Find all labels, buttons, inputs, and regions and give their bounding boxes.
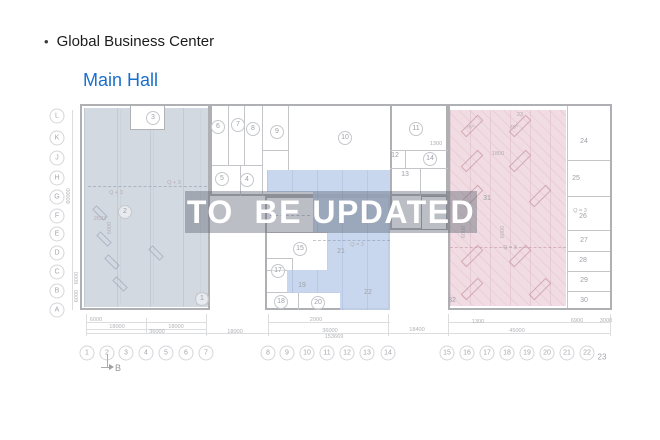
dimension-tick [206, 314, 207, 336]
wall [228, 106, 229, 165]
dimension-tick [448, 314, 449, 336]
dimension-text-vertical: 6000 [73, 290, 79, 302]
hall-tab-main-hall[interactable]: Main Hall [83, 70, 158, 91]
plan-annotation: 1800 [492, 150, 504, 156]
room-number: 25 [570, 173, 582, 185]
section-arrow-icon [109, 364, 114, 370]
dimension-tick [86, 314, 87, 336]
room-number: 15 [293, 242, 307, 256]
page: •Global Business Center Main Hall [0, 0, 660, 440]
section-marker-label: B [115, 363, 121, 373]
wall [567, 291, 610, 292]
grid-col-label: 8 [261, 346, 276, 361]
room-number: 31 [481, 193, 493, 205]
grid-row-label: E [50, 227, 65, 242]
room-number: 24 [578, 136, 590, 148]
plan-annotation: Q = 3 [503, 244, 517, 250]
wall [288, 106, 289, 170]
dimension-text-vertical: 60000 [65, 188, 71, 204]
grid-col-label: 14 [381, 346, 396, 361]
grid-row-label: J [50, 151, 65, 166]
room-number: 1 [195, 292, 209, 306]
plan-annotation: 23 [517, 111, 523, 117]
room-number: 10 [338, 131, 352, 145]
room-number: 28 [577, 255, 589, 267]
dimension-text: 3000 [600, 317, 612, 323]
grid-col-label: 1 [80, 346, 95, 361]
dimension-text: 45000 [509, 327, 525, 333]
grid-col-label: 19 [520, 346, 535, 361]
dimension-text: 36000 [149, 328, 165, 334]
grid-col-label: 17 [480, 346, 495, 361]
room-number: 2 [118, 205, 132, 219]
grid-col-label: 13 [360, 346, 375, 361]
dimension-text: 1300 [472, 318, 484, 324]
room-number: 12 [389, 150, 401, 162]
room-number: 30 [578, 295, 590, 307]
grid-row-label: K [50, 131, 65, 146]
dimension-text-vertical: 6000 [73, 272, 79, 284]
dimension-text: 18000 [168, 323, 184, 329]
grid-col-label: 9 [280, 346, 295, 361]
wall [212, 165, 262, 166]
dimension-text-vertical: 6000 [106, 222, 112, 234]
grid-col-label: 5 [159, 346, 174, 361]
wall [298, 292, 299, 310]
watermark-band: TO BE UPDATED [185, 191, 477, 233]
plan-annotation: 1300 [430, 140, 442, 146]
grid-col-label: 4 [139, 346, 154, 361]
wall [567, 271, 610, 272]
dashed-line [88, 186, 207, 187]
room-number: 14 [423, 152, 437, 166]
grid-col-label: 10 [300, 346, 315, 361]
grid-col-label: 16 [460, 346, 475, 361]
dimension-text: 18000 [227, 328, 243, 334]
dimension-line [268, 322, 390, 323]
grid-col-label: 7 [199, 346, 214, 361]
room-number: 8 [246, 122, 260, 136]
room-number: 7 [231, 118, 245, 132]
page-title-row: •Global Business Center [44, 33, 214, 50]
wall [405, 150, 406, 168]
grid-col-label: 11 [320, 346, 335, 361]
plan-annotation: Q + 3 [167, 179, 181, 185]
room-number: 32 [446, 295, 458, 307]
room-number: 17 [271, 264, 285, 278]
room-number: 20 [311, 296, 325, 310]
room-number: 22 [362, 287, 374, 299]
grid-row-label: D [50, 246, 65, 261]
grid-col-label: 22 [580, 346, 595, 361]
grid-row-label: F [50, 209, 65, 224]
section-marker-line [107, 354, 108, 367]
dimension-text: 153669 [325, 333, 344, 339]
dimension-tick [388, 314, 389, 336]
page-title: Global Business Center [57, 33, 215, 50]
wall [262, 150, 288, 151]
watermark-text: TO BE UPDATED [187, 194, 475, 231]
bullet-icon: • [44, 34, 49, 49]
room-number: 18 [274, 295, 288, 309]
grid-col-label: 20 [540, 346, 555, 361]
plan-annotation: Q = 3 [350, 241, 364, 247]
room-number: 4 [240, 173, 254, 187]
dimension-tick [146, 318, 147, 334]
grid-col-label: 21 [560, 346, 575, 361]
dimension-text: 6000 [90, 316, 102, 322]
wall [262, 106, 263, 196]
plan-annotation: 45° [466, 124, 474, 130]
room-number: 29 [578, 275, 590, 287]
plan-annotation: 45° [510, 124, 518, 130]
grid-row-label: G [50, 190, 65, 205]
grid-row-label: L [50, 109, 65, 124]
grid-col-label: 23 [598, 353, 607, 362]
room-number: 13 [399, 169, 411, 181]
section-marker-line [101, 367, 109, 368]
dimension-text: 2000 [310, 316, 322, 322]
plan-annotation: 2693 [94, 215, 106, 221]
wall [267, 258, 292, 259]
wall [244, 106, 245, 165]
dimension-text: 6900 [571, 317, 583, 323]
wall [567, 106, 568, 308]
grid-col-label: 15 [440, 346, 455, 361]
plan-annotation: Q = 3 [573, 207, 587, 213]
grid-col-label: 6 [179, 346, 194, 361]
grid-row-label: B [50, 284, 65, 299]
grid-row-label: A [50, 303, 65, 318]
plan-annotation: Q + 3 [109, 189, 123, 195]
grid-col-label: 12 [340, 346, 355, 361]
room-number: 9 [270, 125, 284, 139]
dimension-text: 18400 [409, 326, 425, 332]
room-number: 3 [146, 111, 160, 125]
grid-row-label: C [50, 265, 65, 280]
grid-col-label: 18 [500, 346, 515, 361]
grid-row-label: H [50, 171, 65, 186]
dimension-tick [268, 314, 269, 336]
wall [567, 251, 610, 252]
room-number: 5 [215, 172, 229, 186]
wall [567, 160, 610, 161]
dimension-text-vertical: 6000 [499, 226, 505, 238]
room-number: 19 [296, 280, 308, 292]
wall [567, 196, 610, 197]
grid-col-label: 3 [119, 346, 134, 361]
dimension-text: 18000 [109, 323, 125, 329]
room-number: 27 [578, 235, 590, 247]
room-number: 11 [409, 122, 423, 136]
wall [567, 230, 610, 231]
room-number: 6 [211, 120, 225, 134]
room-number: 21 [335, 246, 347, 258]
